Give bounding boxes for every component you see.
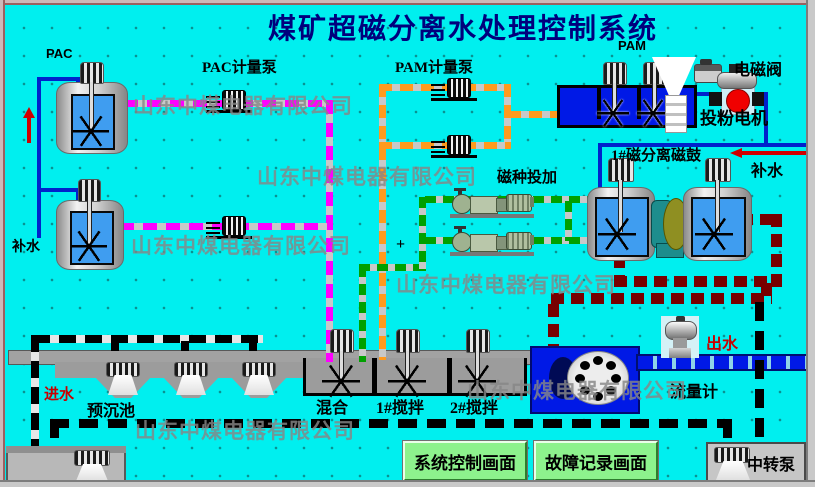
- propeller-icon: [322, 372, 360, 390]
- inflow-arrow-line: [27, 117, 31, 143]
- makeup-water-right-label: 补水: [751, 157, 783, 181]
- return-line-right: [755, 302, 764, 443]
- presed-mixer-motor-icon: [174, 362, 208, 377]
- agitator-motor-icon: [80, 62, 104, 84]
- pump-motor-icon: [506, 232, 532, 250]
- pump-lines: [431, 84, 445, 96]
- pump-lines: [431, 141, 445, 153]
- bottom-line-left-drop: [50, 419, 59, 449]
- transfer-pump-label: 中转泵: [747, 451, 795, 475]
- frame-right: [806, 0, 815, 487]
- pump-base: [431, 155, 477, 158]
- disc-dot: [606, 361, 616, 370]
- sludge-line-h1: [614, 276, 772, 287]
- pam-label: PAM: [618, 38, 646, 53]
- pump-motor-icon: [447, 135, 471, 155]
- presed-mixer-motor-icon: [242, 362, 276, 377]
- transfer-pump-motor-icon: [714, 447, 750, 463]
- powder-motor-label: 投粉电机: [700, 104, 768, 129]
- pam-metering-pump-2: [431, 131, 477, 161]
- inlet-label: 进水: [44, 383, 74, 404]
- seed-pump-1: [450, 188, 534, 218]
- frame-top-line: [0, 3, 815, 5]
- watermark: 山东中煤电器有限公司: [131, 230, 351, 260]
- makeup-water-left-label: 补水: [12, 236, 40, 256]
- watermark: 山东中煤电器有限公司: [133, 90, 353, 120]
- watermark: 山东中煤电器有限公司: [467, 375, 687, 405]
- mag-tank-B: [681, 155, 752, 259]
- propeller-icon: [598, 225, 636, 243]
- plus-mark: +: [396, 236, 405, 254]
- mag-separator-label: 1#磁分离磁鼓: [611, 144, 701, 165]
- pump-motor-cap: [530, 197, 534, 207]
- pac-pump-label: PAC计量泵: [202, 56, 277, 77]
- watermark: 山东中煤电器有限公司: [257, 161, 477, 191]
- mix-agitator-motor-icon: [330, 329, 354, 353]
- seed-line-v3: [565, 201, 572, 241]
- propeller-icon: [597, 105, 629, 121]
- inlet-left-drop: [31, 335, 39, 450]
- fault-record-button[interactable]: 故障记录画面: [534, 441, 658, 481]
- system-control-button[interactable]: 系统控制画面: [403, 441, 527, 481]
- inlet-stub-1: [111, 341, 119, 351]
- frame-left-line: [3, 0, 5, 487]
- mix-agitator-motor-icon: [466, 329, 490, 353]
- pipe-makeup-vertical: [37, 77, 41, 238]
- pam-line-left: [379, 84, 386, 360]
- pam-pump-label: PAM计量泵: [395, 56, 473, 77]
- propeller-icon: [695, 225, 733, 243]
- seed-dosing-label: 磁种投加: [497, 166, 557, 187]
- pac-tank-1: [54, 60, 128, 154]
- presed-label: 预沉池: [87, 397, 135, 421]
- agitator-motor-icon: [705, 158, 731, 182]
- seed-line-v1: [359, 266, 366, 362]
- frame-bottom: [0, 480, 815, 487]
- pump-base: [450, 252, 534, 256]
- pump-head: [452, 232, 472, 252]
- seed-pump-2: [450, 226, 534, 256]
- page-title: 煤矿超磁分离水处理控制系统: [268, 7, 658, 47]
- pump-body: [470, 234, 498, 252]
- pump-base: [431, 98, 477, 101]
- propeller-icon: [388, 372, 426, 390]
- pam-agitator-motor-icon: [603, 62, 627, 85]
- propeller-icon: [71, 237, 107, 255]
- chamber-wall: [447, 358, 452, 396]
- inlet-stub-3: [249, 341, 257, 351]
- pump-motor-icon: [506, 194, 532, 212]
- pac-tank-2: [54, 177, 124, 269]
- pump-base: [450, 214, 534, 218]
- pump-head: [452, 194, 472, 214]
- solenoid-valve-label: 电磁阀: [734, 56, 782, 80]
- inlet-stub-2: [181, 341, 189, 351]
- mag-tank-A: [585, 155, 655, 259]
- chamber-wall: [372, 358, 377, 396]
- pump-body: [470, 196, 498, 214]
- presed-mixer-motor-icon: [106, 362, 140, 377]
- pump-motor-cap: [530, 235, 534, 245]
- inlet-distribution-line: [33, 335, 263, 343]
- disc-dot: [580, 361, 590, 370]
- agitator-motor-icon: [78, 179, 101, 202]
- watermark: 山东中煤电器有限公司: [135, 415, 355, 445]
- flow-meter-base: [669, 348, 691, 358]
- powder-motor-cap: [700, 59, 712, 65]
- sludge-line-to-separator: [548, 304, 559, 348]
- makeup-line-right: [741, 151, 815, 155]
- seed-line-v2: [419, 197, 426, 271]
- watermark: 山东中煤电器有限公司: [396, 269, 616, 299]
- disc-dot: [593, 356, 603, 365]
- pump-motor-icon: [447, 78, 471, 98]
- pac-label: PAC: [46, 46, 72, 61]
- sludge-line-tankB-drop: [771, 214, 782, 287]
- powder-feeder-column: [665, 95, 687, 133]
- stir1-label: 1#搅拌: [376, 394, 424, 418]
- flow-meter-neck: [673, 338, 687, 348]
- propeller-icon: [73, 122, 109, 140]
- scada-screen: 煤矿超磁分离水处理控制系统 PAC PAC计量泵 PAM计量泵 PAM 电磁阀 …: [0, 0, 815, 487]
- pam-metering-pump-1: [431, 74, 477, 104]
- pam-line-to-tank: [508, 111, 560, 118]
- collection-pump-motor-icon: [74, 450, 110, 466]
- outlet-label: 出水: [706, 330, 738, 354]
- mix-agitator-motor-icon: [396, 329, 420, 353]
